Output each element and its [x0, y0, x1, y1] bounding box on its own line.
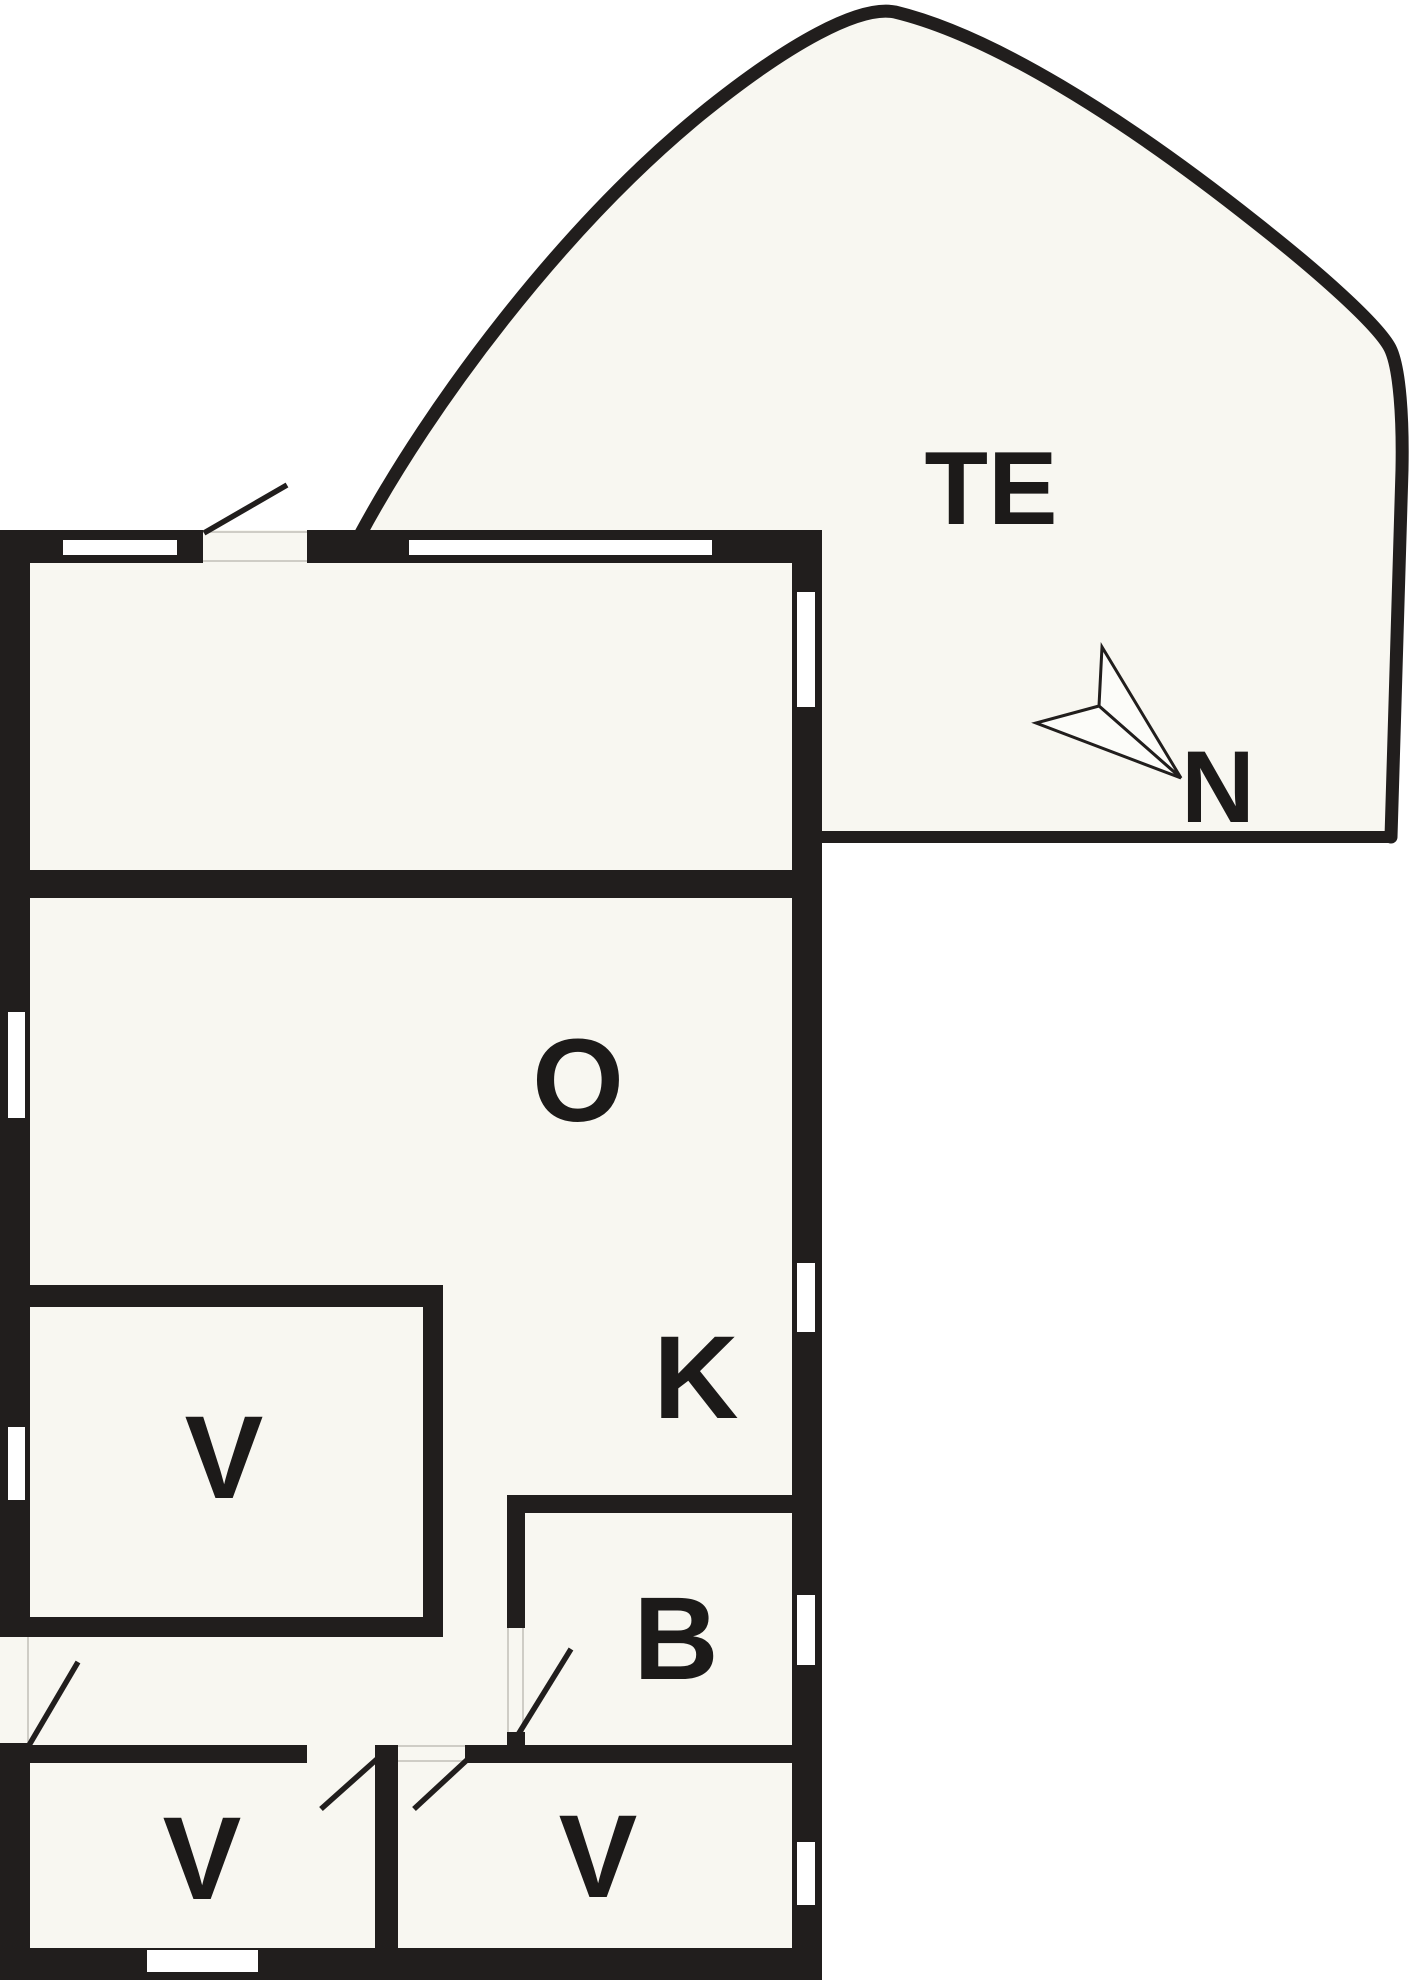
terrace-bottom-wall — [822, 831, 1390, 843]
label-room-o: O — [532, 1015, 624, 1147]
wall-bottom — [0, 1948, 822, 1980]
label-room-v-main: V — [185, 1392, 264, 1524]
wall-bottomrooms-middle — [375, 1745, 398, 1948]
label-room-v-bottom-left: V — [163, 1793, 242, 1925]
window-left-2 — [8, 1427, 25, 1500]
door-opening-bottom-left-room — [307, 1745, 375, 1763]
label-north: N — [1181, 730, 1255, 844]
wall-broom-left-upper — [507, 1495, 525, 1628]
door-opening-top — [203, 530, 307, 563]
window-right-1 — [797, 592, 815, 707]
window-right-4 — [797, 1842, 815, 1905]
window-left-1 — [8, 1012, 25, 1118]
door-opening-left — [0, 1637, 30, 1743]
wall-vroom-right — [423, 1285, 443, 1637]
wall-bottomrooms-right-seg — [465, 1745, 792, 1763]
window-top-1 — [63, 540, 177, 555]
window-right-3 — [797, 1595, 815, 1665]
label-room-k: K — [653, 1312, 738, 1444]
wall-bottomrooms-left-seg — [0, 1745, 307, 1763]
label-terrace: TE — [925, 431, 1058, 547]
window-right-2 — [797, 1263, 815, 1332]
window-top-2 — [409, 540, 712, 555]
window-bottom-1 — [147, 1950, 258, 1972]
label-room-v-bottom-right: V — [559, 1791, 638, 1923]
wall-top-room-divider — [30, 870, 792, 898]
floor-plan-canvas: TE N O K V B V V — [0, 0, 1412, 1980]
label-room-b: B — [633, 1573, 718, 1705]
wall-vroom-top — [30, 1285, 443, 1307]
wall-broom-top — [507, 1495, 792, 1513]
wall-right — [792, 530, 822, 1980]
wall-vroom-bottom — [30, 1617, 443, 1637]
